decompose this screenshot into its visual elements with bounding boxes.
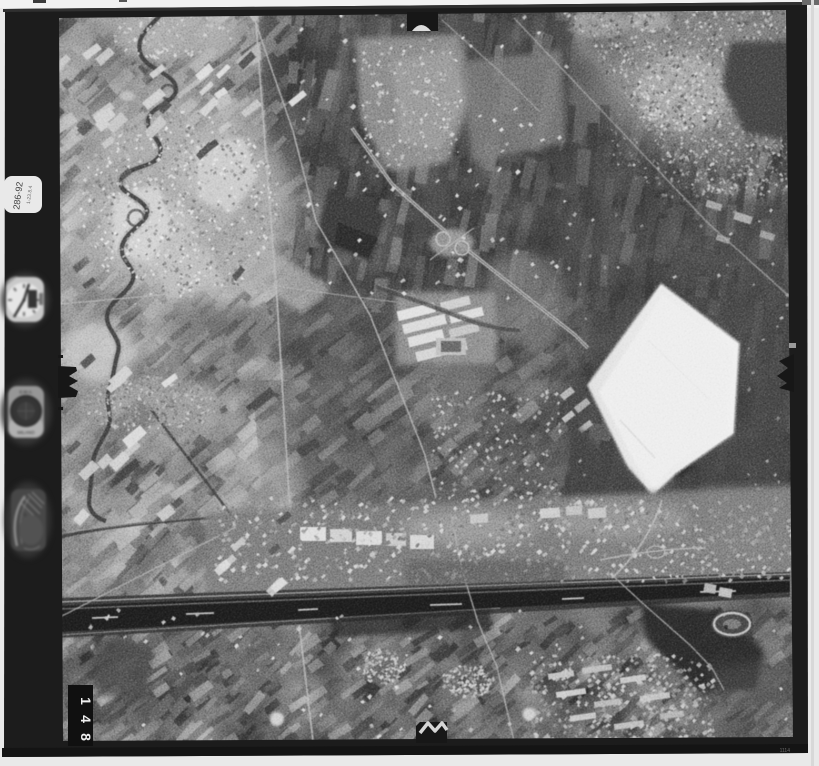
svg-text:MILANO: MILANO — [17, 430, 35, 435]
svg-text:8: 8 — [78, 733, 94, 741]
svg-text:S.M.A.: S.M.A. — [19, 390, 33, 395]
svg-text:1114: 1114 — [780, 748, 791, 754]
svg-text:4: 4 — [78, 715, 94, 723]
svg-text:1: 1 — [78, 697, 94, 705]
